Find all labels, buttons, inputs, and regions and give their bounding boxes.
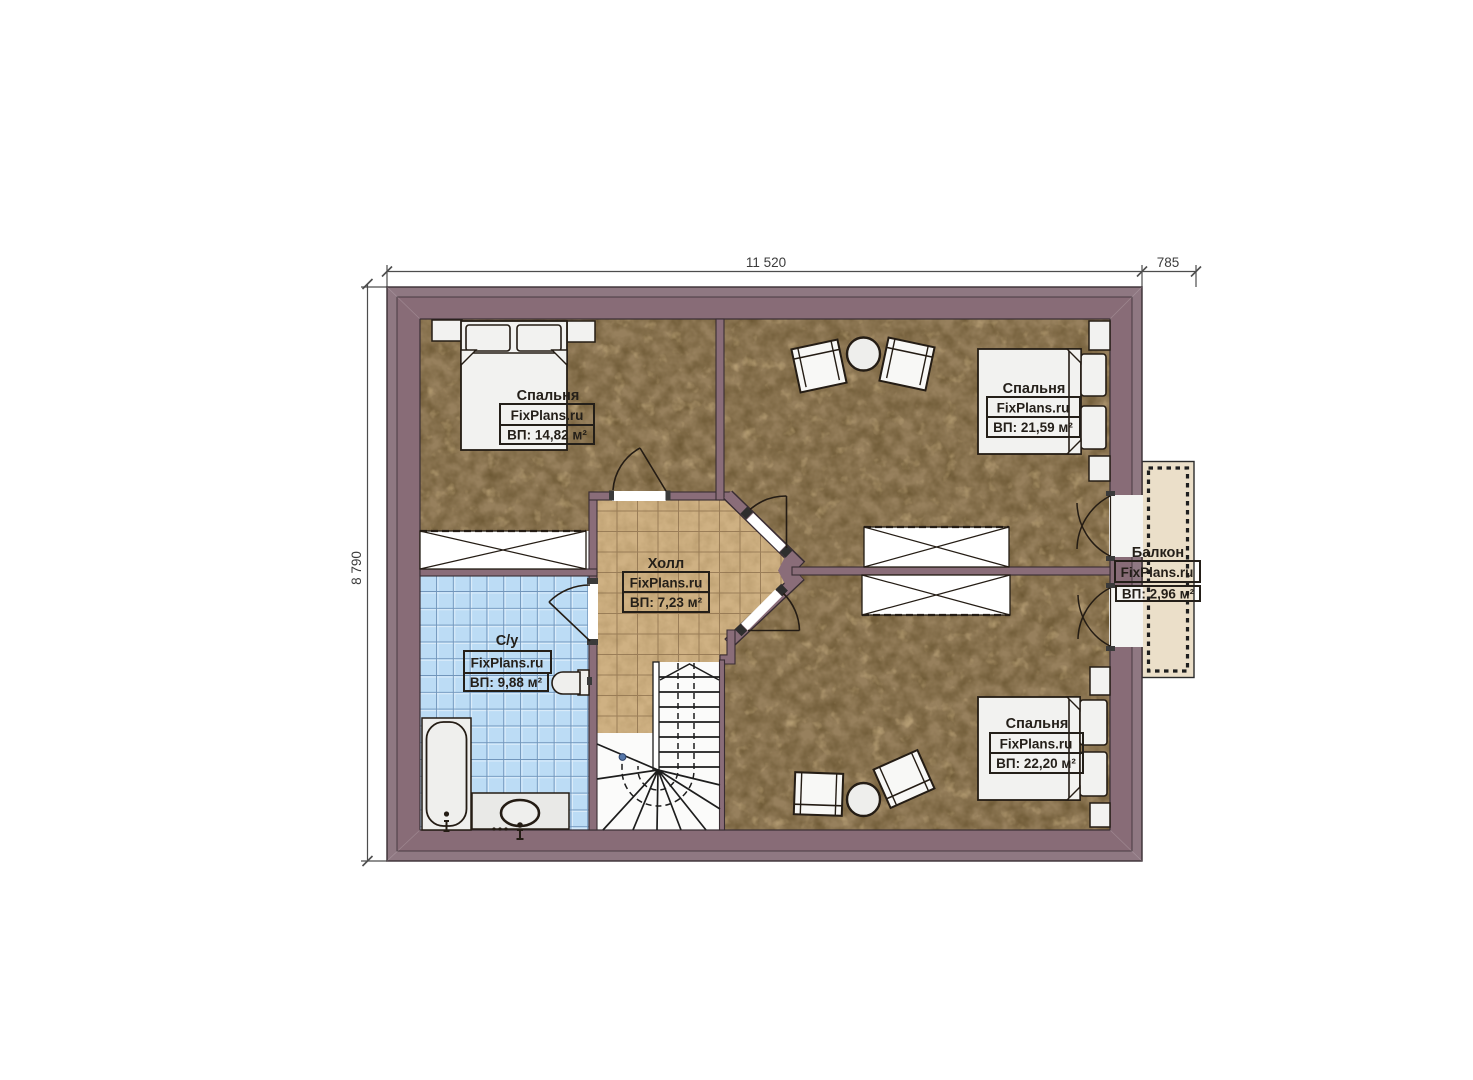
svg-text:ВП: 21,59 м²: ВП: 21,59 м² bbox=[993, 420, 1073, 435]
svg-text:11 520: 11 520 bbox=[746, 255, 786, 270]
svg-text:ВП: 7,23 м²: ВП: 7,23 м² bbox=[630, 595, 703, 610]
svg-text:Спальня: Спальня bbox=[517, 388, 580, 404]
svg-text:Холл: Холл bbox=[648, 556, 684, 572]
svg-text:FixPlans.ru: FixPlans.ru bbox=[1121, 565, 1194, 580]
svg-text:Спальня: Спальня bbox=[1003, 381, 1066, 397]
svg-text:Балкон: Балкон bbox=[1132, 545, 1184, 561]
svg-text:FixPlans.ru: FixPlans.ru bbox=[511, 408, 584, 423]
svg-text:С/у: С/у bbox=[496, 633, 519, 649]
svg-text:785: 785 bbox=[1157, 255, 1180, 270]
svg-text:ВП: 22,20 м²: ВП: 22,20 м² bbox=[996, 756, 1076, 771]
svg-text:8 790: 8 790 bbox=[349, 551, 364, 585]
svg-text:FixPlans.ru: FixPlans.ru bbox=[630, 576, 703, 591]
svg-text:ВП: 9,88 м²: ВП: 9,88 м² bbox=[470, 675, 543, 690]
svg-text:ВП: 2,96 м²: ВП: 2,96 м² bbox=[1122, 587, 1195, 602]
svg-text:ВП: 14,82 м²: ВП: 14,82 м² bbox=[507, 428, 587, 443]
svg-text:Спальня: Спальня bbox=[1006, 716, 1069, 732]
svg-text:FixPlans.ru: FixPlans.ru bbox=[997, 401, 1070, 416]
svg-text:FixPlans.ru: FixPlans.ru bbox=[1000, 737, 1073, 752]
svg-text:FixPlans.ru: FixPlans.ru bbox=[471, 656, 544, 671]
